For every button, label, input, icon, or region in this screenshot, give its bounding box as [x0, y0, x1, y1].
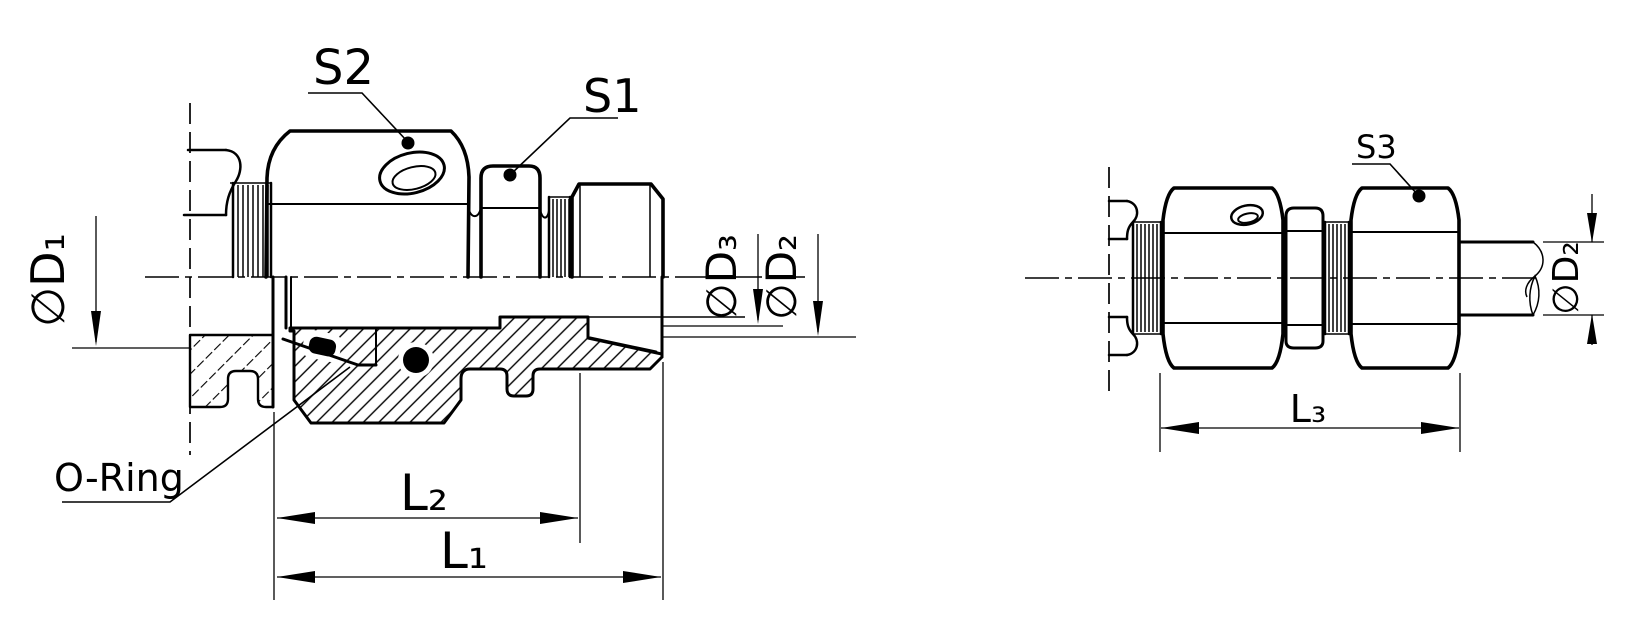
label-s2: S2 — [313, 40, 374, 96]
serration-lines — [238, 185, 268, 277]
serration-b-lines — [553, 199, 569, 277]
label-s3: S3 — [1356, 128, 1397, 166]
male-thread-serration — [549, 197, 570, 277]
tube-break-lens — [1530, 276, 1539, 315]
leader-s2 — [308, 93, 415, 150]
port-block-section — [190, 335, 273, 407]
label-o-ring: O-Ring — [54, 456, 184, 500]
technical-drawing: S2 S1 O-Ring ∅D₁ ∅D₃ ∅D₂ L₂ L₁ — [0, 0, 1630, 642]
label-dia-d2-left: ∅D₂ — [757, 234, 806, 320]
leader-dot-s3 — [1413, 190, 1426, 203]
o-ring-section — [403, 347, 429, 373]
right-hex-marking-oval — [1229, 202, 1264, 227]
leader-dot-s2 — [402, 137, 415, 150]
label-l1: L₁ — [440, 522, 488, 580]
drawing-canvas: S2 S1 O-Ring ∅D₁ ∅D₃ ∅D₂ L₂ L₁ — [0, 0, 1630, 642]
label-dia-d2-right: ∅D₂ — [1546, 241, 1587, 315]
label-l3: L₃ — [1290, 387, 1326, 431]
label-s1: S1 — [583, 69, 641, 123]
label-dia-d1: ∅D₁ — [21, 233, 75, 327]
serration-b-edges — [549, 197, 570, 277]
right-serration-2 — [1325, 222, 1349, 334]
dimension-d1 — [72, 216, 190, 348]
leader-dot-s1 — [504, 169, 517, 182]
tube-break-curve — [1526, 242, 1543, 297]
left-fitting-view: S2 S1 O-Ring ∅D₁ ∅D₃ ∅D₂ L₂ L₁ — [21, 40, 856, 600]
leader-s3 — [1352, 164, 1426, 203]
hex-marking-oval — [375, 146, 449, 201]
hex-s1-outline — [481, 166, 540, 277]
leader-s1 — [504, 118, 619, 182]
label-l2: L₂ — [400, 464, 448, 522]
right-fitting-view: S3 ∅D₂ L₃ — [1025, 128, 1604, 452]
label-dia-d3: ∅D₃ — [697, 234, 746, 320]
hex-marking-oval-inner — [390, 162, 438, 194]
